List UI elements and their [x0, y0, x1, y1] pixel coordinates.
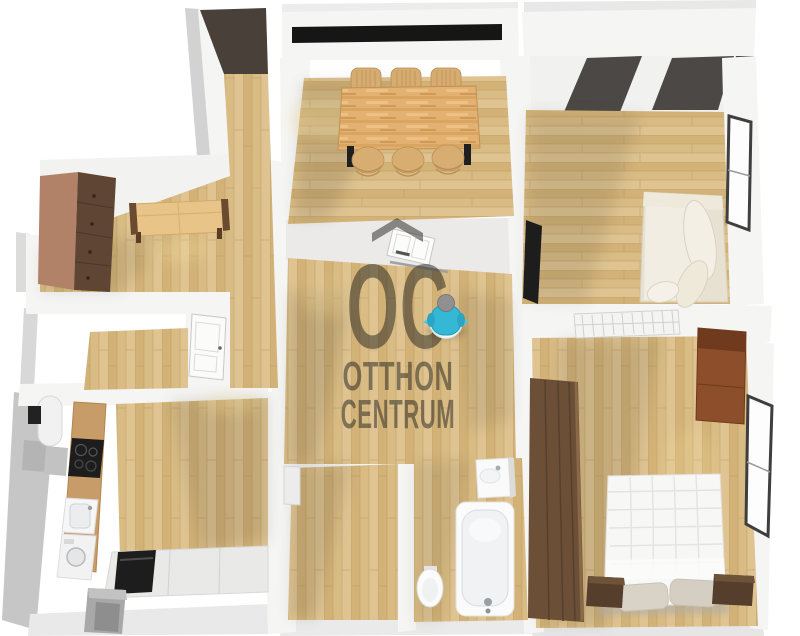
avatar-arm [457, 313, 465, 327]
dining-chair-row-bottom [352, 145, 464, 176]
kitchen-sink [62, 498, 98, 534]
storage-room-door [189, 314, 226, 380]
bedroom-radiator [574, 310, 680, 338]
living-sofa [640, 192, 728, 312]
bedroom-wardrobe [528, 378, 584, 622]
tub-faucet [484, 598, 492, 606]
wall [522, 8, 756, 58]
nightstand-left [586, 576, 625, 608]
bathtub [456, 502, 514, 616]
kitchen-island-box [84, 588, 127, 634]
dining-window-bar [292, 24, 502, 43]
bedroom-window [746, 396, 772, 536]
small-room-radiator [284, 466, 300, 505]
watermark-line2: CENTRUM [341, 391, 455, 437]
avatar-head[interactable] [438, 295, 455, 312]
bathroom-basin [476, 458, 516, 498]
entry-dresser-front [74, 172, 116, 292]
duvet-fold [606, 558, 725, 580]
door-handle [218, 346, 222, 350]
tub-faucet [486, 609, 491, 614]
dining-table [338, 86, 480, 150]
faucet [496, 466, 501, 471]
bedroom-cabinet [696, 328, 746, 424]
kitchen-wall-cabinet [44, 446, 68, 476]
washing-machine [57, 534, 96, 580]
bed-pillow [669, 579, 718, 607]
bench-leg [217, 228, 222, 239]
outer-edge [20, 308, 38, 390]
floorplan-render: OC OTTHON CENTRUM [0, 0, 800, 636]
entry-dresser-top [38, 172, 78, 290]
dining-chair [352, 147, 384, 176]
dining-chair [432, 145, 464, 174]
living-window [727, 116, 751, 230]
kitchen-small-appliance [28, 406, 41, 424]
faucet [88, 506, 92, 510]
kitchen-oven [114, 550, 156, 594]
outer-edge [28, 604, 272, 636]
table-leg [464, 144, 471, 165]
avatar-arm [427, 313, 435, 327]
nightstand-right [712, 574, 755, 606]
storage-room-floor[interactable] [84, 328, 188, 390]
kitchen-cooktop [68, 438, 104, 478]
dining-chair [392, 147, 424, 176]
water-heater [38, 396, 62, 446]
bed-pillow [617, 582, 669, 611]
floorplan-viewer: OC OTTHON CENTRUM [0, 0, 800, 636]
wall [396, 448, 416, 632]
